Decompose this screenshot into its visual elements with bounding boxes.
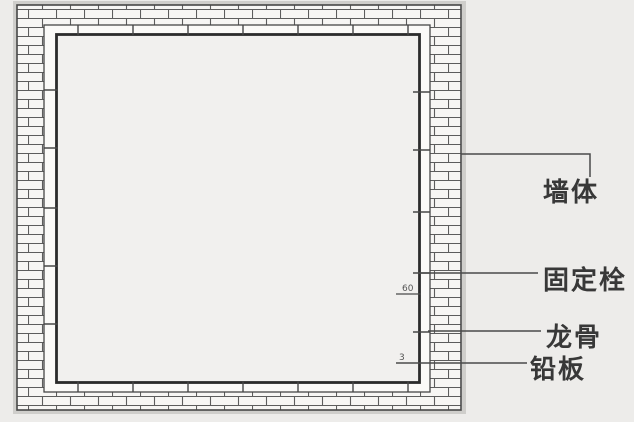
label-fixing-bolt: 固定栓 [543, 265, 627, 296]
dim-keel-size: 60 [402, 284, 414, 294]
label-lead-plate: 铅板 [530, 355, 586, 385]
label-keel: 龙骨 [546, 323, 602, 353]
scanned-diagram-page: 墙体 固定栓 龙骨 铅板 60 3 [0, 0, 634, 422]
label-wall: 墙体 [543, 178, 599, 208]
lead-plate-line [57, 35, 420, 383]
wall-section-diagram: 墙体 固定栓 龙骨 铅板 60 3 [0, 0, 634, 422]
dim-lead-thickness: 3 [399, 353, 405, 363]
